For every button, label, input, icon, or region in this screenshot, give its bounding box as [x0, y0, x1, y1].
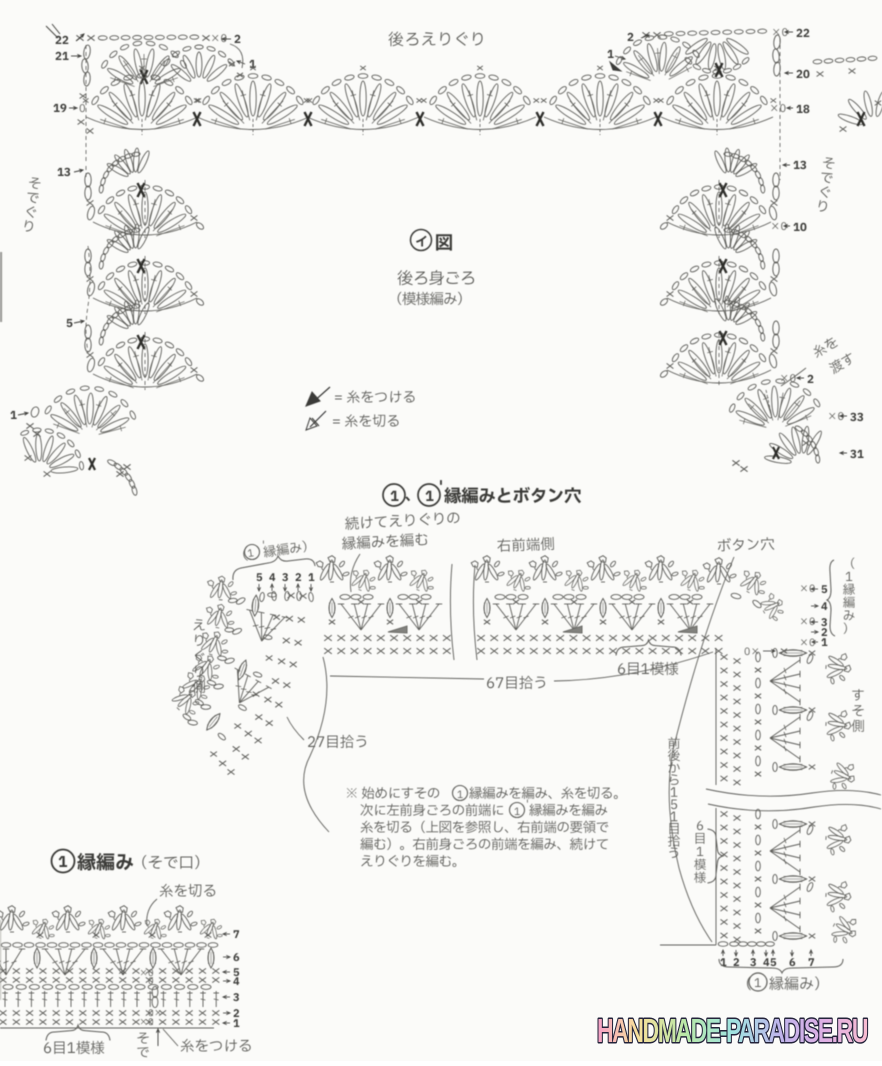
- svg-text:HANDMADE-PARADISE.RU: HANDMADE-PARADISE.RU: [597, 1012, 867, 1049]
